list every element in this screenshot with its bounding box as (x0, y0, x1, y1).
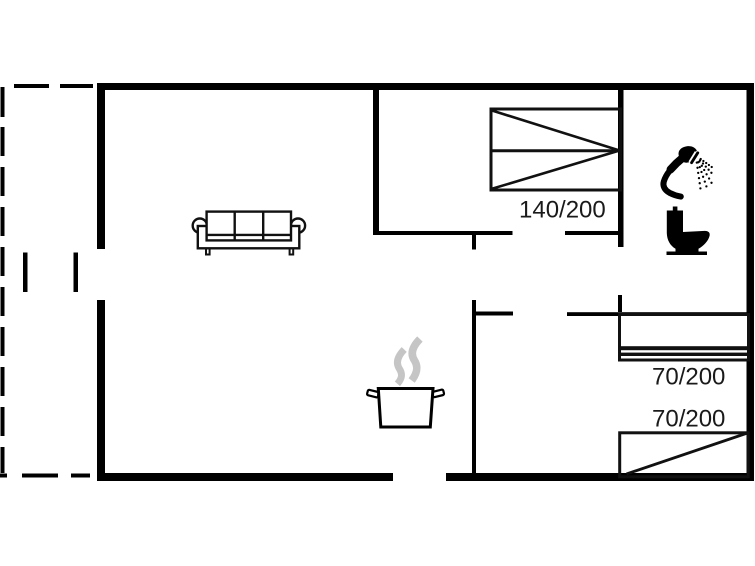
svg-text:70/200: 70/200 (652, 364, 725, 391)
svg-text:70/200: 70/200 (652, 405, 725, 432)
svg-text:140/200: 140/200 (519, 197, 606, 224)
